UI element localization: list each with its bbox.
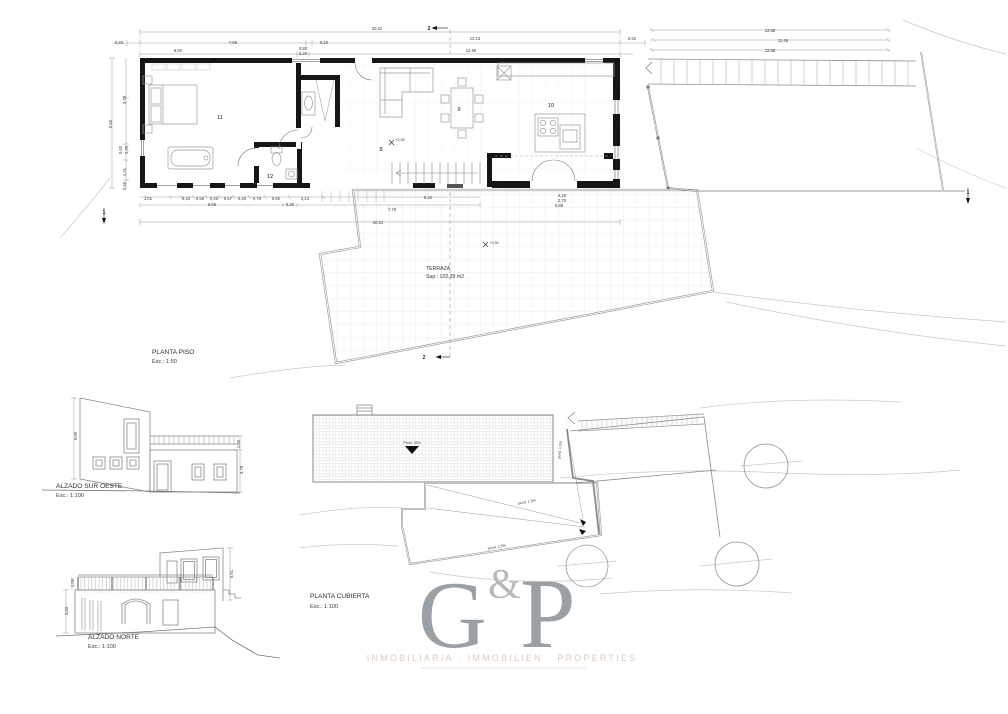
dimension-label: 0,40 bbox=[238, 196, 247, 201]
dimension-label: 2,20 bbox=[124, 145, 129, 154]
dimension-label: 20,21 bbox=[373, 220, 384, 225]
north-slit-windows bbox=[82, 598, 101, 631]
dimension-label: pend. 1,5% bbox=[557, 440, 563, 459]
dimension-label: 1,00 bbox=[70, 578, 75, 587]
alzado-norte-label: ALZADO NORTE bbox=[88, 634, 140, 641]
dimension-label: 0,10 bbox=[320, 40, 329, 45]
drawing-sheet: PLANTA PISO Esc.: 1:50 ALZADO SUR OESTE … bbox=[0, 0, 1008, 714]
dimension-label: 11 bbox=[217, 115, 223, 121]
dimension-label: 5,88 bbox=[555, 203, 564, 208]
terraza-label: TERRAZA bbox=[426, 266, 451, 272]
sw-small-windows bbox=[93, 457, 139, 469]
north-ground-line bbox=[56, 627, 280, 658]
pergola-strip bbox=[646, 59, 916, 86]
dimension-label: 9 bbox=[457, 107, 460, 113]
gp-logo: G & P INMOBILIARIA · IMMOBILIEN · PROPER… bbox=[367, 558, 637, 669]
dimension-label: 12,13 bbox=[470, 36, 481, 41]
dimension-label: 8 bbox=[379, 147, 382, 153]
dimension-label: 6,00 bbox=[73, 431, 78, 440]
dimension-label: 1,00 bbox=[236, 439, 241, 448]
shower bbox=[302, 80, 334, 121]
dimension-label: 0,55 bbox=[122, 181, 127, 190]
dimension-label: 12,58 bbox=[765, 48, 776, 53]
dimension-label: 0,79 bbox=[253, 196, 262, 201]
dimension-label: 5,60 bbox=[108, 119, 113, 128]
dimension-label: 1 bbox=[967, 190, 970, 196]
planta-cubierta-scale: Esc.: 1:100 bbox=[310, 604, 338, 610]
dimension-label: 0,58 bbox=[196, 196, 205, 201]
dimension-label: 0,57 bbox=[224, 196, 233, 201]
planta-piso-scale: Esc.: 1:50 bbox=[152, 359, 177, 365]
sw-pergola bbox=[150, 436, 239, 450]
dimension-label: 3,83 bbox=[64, 606, 69, 615]
dimension-label: 4,13 bbox=[301, 196, 310, 201]
roof-hatch bbox=[313, 415, 553, 482]
dimension-label: pend. 1,5% bbox=[518, 498, 537, 505]
dimension-label: 0,60 bbox=[118, 145, 123, 154]
dimension-label: 1,01 bbox=[144, 196, 153, 201]
dimension-label: 6,55 bbox=[208, 202, 217, 207]
dimension-label: 0,33 bbox=[115, 40, 124, 45]
alzado-sur-oeste-scale: Esc.: 1:100 bbox=[56, 493, 84, 499]
dimension-label: 2,20 bbox=[299, 51, 308, 56]
dimension-label: 7,65 bbox=[229, 40, 238, 45]
dimension-label: Pend. 35% bbox=[403, 441, 421, 445]
section-marker-2-top bbox=[432, 26, 449, 30]
dimension-label: 6,42 bbox=[424, 195, 433, 200]
dimension-label: 12 bbox=[267, 174, 273, 180]
dimension-label: 3,79 bbox=[122, 95, 127, 104]
dimension-label: +3,50 bbox=[395, 138, 405, 142]
dimension-label: 11,46 bbox=[778, 38, 789, 43]
wc-fixtures bbox=[271, 147, 297, 179]
dimension-label: 20,21 bbox=[372, 26, 383, 31]
bathtub bbox=[168, 147, 213, 169]
dimension-label: 6,92 bbox=[174, 48, 183, 53]
dimension-label: 2 bbox=[428, 26, 431, 32]
retaining-wall bbox=[647, 86, 966, 192]
dimension-label: 10 bbox=[548, 103, 554, 109]
dimension-label: 1 bbox=[103, 210, 106, 216]
dimension-label: 0,40 bbox=[210, 196, 219, 201]
dimension-label: 2 bbox=[423, 355, 426, 361]
dimension-label: 0,92 bbox=[628, 36, 637, 41]
wardrobe-marks bbox=[152, 64, 210, 70]
elevation-north-group bbox=[56, 548, 280, 658]
alzado-sur-oeste-label: ALZADO SUR OESTE bbox=[56, 483, 123, 490]
neighbor-plot bbox=[568, 412, 720, 537]
dimension-label: 7,78 bbox=[388, 207, 397, 212]
logo-ampersand: & bbox=[488, 562, 521, 608]
planta-cubierta-label: PLANTA CUBIERTA bbox=[310, 593, 370, 600]
dimension-label: 1,21 bbox=[122, 167, 127, 176]
terraza-area-label: Sup.: 102,39 m2 bbox=[426, 274, 464, 280]
chimney bbox=[357, 405, 372, 415]
dimension-label: +3,50 bbox=[489, 241, 499, 245]
dimension-label: 0,43 bbox=[182, 196, 191, 201]
section-marker-2-bottom bbox=[436, 355, 451, 359]
alzado-norte-scale: Esc.: 1:100 bbox=[88, 644, 116, 650]
bed bbox=[143, 76, 197, 133]
chevron-mark bbox=[646, 62, 652, 74]
dimension-label: 5,61 bbox=[229, 569, 234, 578]
terrace-outline bbox=[320, 190, 713, 363]
dimension-label: 3,78 bbox=[239, 465, 244, 474]
logo-tagline: INMOBILIARIA · IMMOBILIEN · PROPERTIES bbox=[367, 653, 637, 663]
dimension-label: 0,20 bbox=[286, 202, 295, 207]
plot-boundary bbox=[921, 52, 943, 190]
north-pergola-railing bbox=[78, 575, 213, 592]
dimension-label: 12,59 bbox=[466, 48, 477, 53]
dimension-label: 0,82 bbox=[272, 196, 281, 201]
dimension-label: 12,58 bbox=[765, 28, 776, 33]
planta-piso-label: PLANTA PISO bbox=[152, 349, 194, 356]
